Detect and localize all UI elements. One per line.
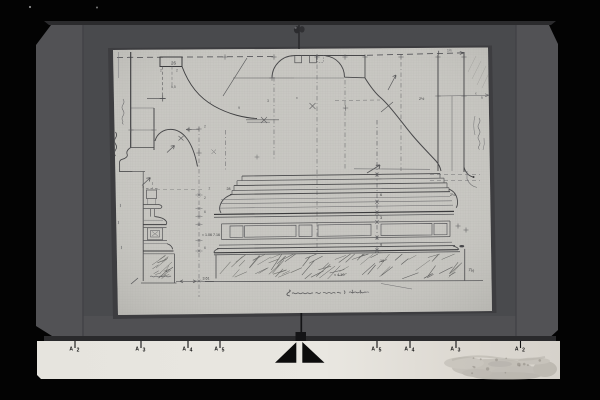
svg-text:4: 4 (190, 348, 193, 354)
svg-text:2: 2 (77, 348, 80, 354)
svg-text:A: A (135, 347, 139, 353)
svg-text:6: 6 (204, 246, 206, 250)
svg-text:4: 4 (209, 101, 211, 105)
svg-text:3.61: 3.61 (203, 277, 210, 281)
svg-text:≈ 1.06 7.16: ≈ 1.06 7.16 (202, 233, 220, 237)
svg-text:2: 2 (176, 69, 178, 73)
svg-text:9: 9 (481, 96, 483, 100)
svg-text:6: 6 (204, 210, 206, 214)
svg-text:x: x (296, 96, 298, 100)
svg-text:26: 26 (171, 61, 176, 66)
svg-text:5: 5 (379, 348, 382, 354)
svg-text:28: 28 (227, 187, 231, 191)
svg-text:A: A (404, 347, 408, 353)
svg-text:1½: 1½ (447, 49, 452, 53)
svg-text:A: A (182, 347, 186, 353)
svg-text:2: 2 (522, 348, 525, 354)
svg-text:2½: 2½ (419, 97, 425, 101)
svg-text:2: 2 (160, 69, 162, 73)
svg-text:3: 3 (267, 99, 269, 103)
svg-text:6: 6 (380, 193, 382, 197)
svg-text:≈ 4.10: ≈ 4.10 (334, 273, 345, 277)
svg-text:3: 3 (143, 348, 146, 354)
svg-text:2: 2 (209, 187, 211, 191)
svg-text:2⅛: 2⅛ (450, 193, 456, 197)
svg-text:5: 5 (222, 348, 225, 354)
svg-text:4: 4 (412, 348, 415, 354)
svg-text:A: A (371, 347, 375, 353)
svg-text:9,5: 9,5 (171, 85, 176, 89)
svg-text:A: A (214, 347, 218, 353)
svg-text:A: A (69, 347, 73, 353)
svg-text:A: A (450, 347, 454, 353)
svg-text:A: A (515, 347, 519, 353)
svg-text:2: 2 (204, 196, 206, 200)
svg-text:3: 3 (380, 216, 382, 220)
svg-text:9: 9 (238, 106, 240, 110)
svg-text:3: 3 (458, 348, 461, 354)
svg-text:2: 2 (204, 125, 206, 129)
svg-text:9: 9 (380, 243, 382, 247)
